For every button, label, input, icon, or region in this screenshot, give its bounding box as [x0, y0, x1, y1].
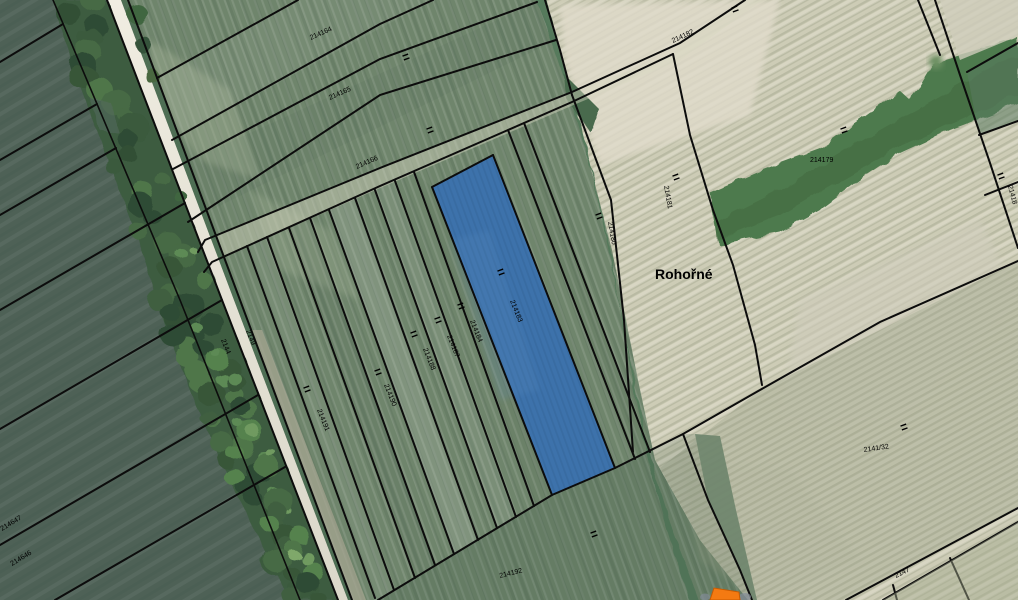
svg-text:Rohořné: Rohořné [655, 266, 713, 282]
svg-text:214179: 214179 [810, 157, 833, 164]
